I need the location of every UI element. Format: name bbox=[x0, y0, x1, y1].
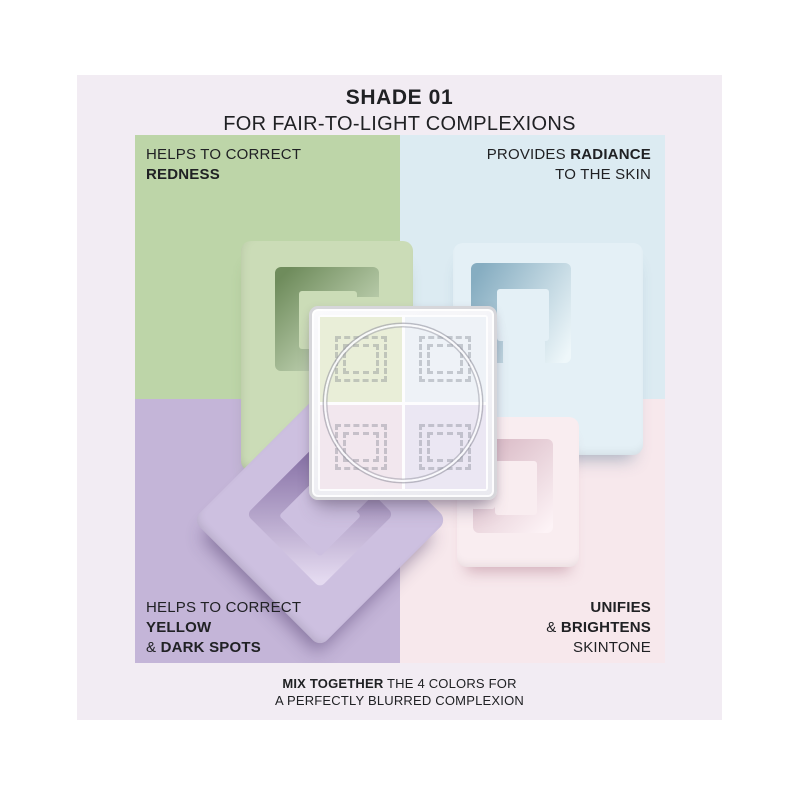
blue-benefit-label: PROVIDES RADIANCE TO THE SKIN bbox=[487, 145, 651, 185]
shade-subtitle: FOR FAIR-TO-LIGHT COMPLEXIONS bbox=[77, 113, 722, 136]
header: SHADE 01 FOR FAIR-TO-LIGHT COMPLEXIONS bbox=[77, 86, 722, 136]
quadrant-grid: HELPS TO CORRECT REDNESS PROVIDES RADIAN… bbox=[135, 135, 665, 663]
powder-compact bbox=[309, 306, 497, 500]
sifter-ring bbox=[324, 324, 482, 482]
green-benefit-label: HELPS TO CORRECT REDNESS bbox=[146, 145, 301, 185]
mixing-instruction: MIX TOGETHER THE 4 COLORS FOR A PERFECTL… bbox=[77, 675, 722, 709]
powder-compact-inner bbox=[318, 315, 488, 491]
shade-panel: SHADE 01 FOR FAIR-TO-LIGHT COMPLEXIONS bbox=[77, 75, 722, 720]
product-infographic: SHADE 01 FOR FAIR-TO-LIGHT COMPLEXIONS bbox=[0, 0, 800, 800]
pink-benefit-label: UNIFIES & BRIGHTENS SKINTONE bbox=[546, 598, 651, 658]
shade-title: SHADE 01 bbox=[77, 86, 722, 110]
purple-benefit-label: HELPS TO CORRECT YELLOW & DARK SPOTS bbox=[146, 598, 301, 658]
